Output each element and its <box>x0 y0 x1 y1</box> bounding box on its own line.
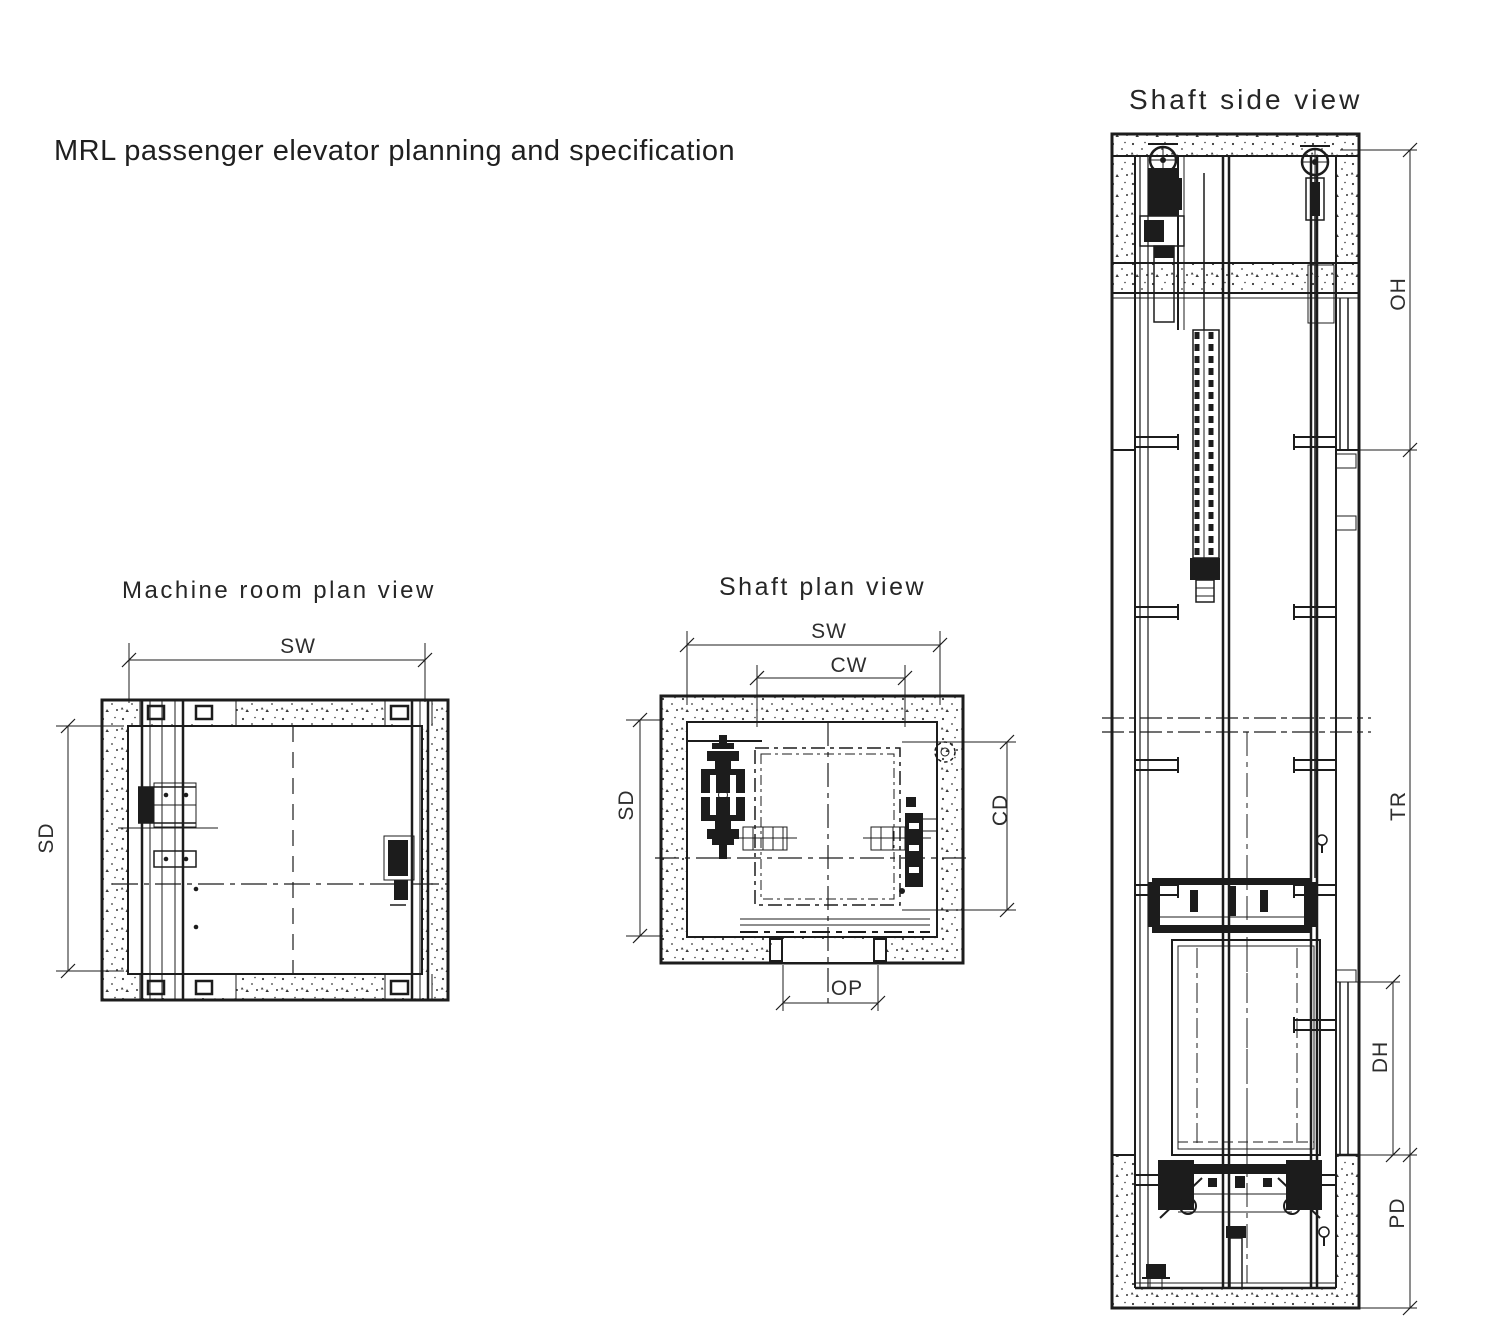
shaft-plan-door-sill <box>740 919 930 932</box>
shaft-side-car <box>1148 878 1320 1155</box>
shaft-plan-dimension-sd <box>626 713 663 943</box>
shaft-side-buffers <box>1142 1226 1329 1288</box>
machine-room-dimension-sw <box>122 643 432 703</box>
machine-room-governor <box>384 836 414 905</box>
machine-room-machine <box>118 783 218 929</box>
machine-room-guide-rails <box>142 700 428 1000</box>
shaft-plan-dimension-sw <box>680 631 947 705</box>
shaft-plan-machine <box>687 735 762 859</box>
shaft-side-guide-rails <box>1140 156 1317 1288</box>
shaft-plan-rail-brackets <box>735 827 931 850</box>
shaft-side-counterweight <box>1190 173 1220 602</box>
shaft-side-break-lines <box>1102 718 1371 732</box>
shaft-side-machine <box>1140 156 1184 330</box>
shaft-side-rail-brackets <box>1135 434 1336 1188</box>
shaft-side-walls <box>1112 134 1359 1308</box>
drawing-sheet: MRL passenger elevator planning and spec… <box>0 0 1496 1332</box>
shaft-plan-drawing <box>600 555 1050 1035</box>
shaft-side-safety-gear <box>1158 1160 1322 1218</box>
shaft-side-drawing <box>1090 120 1430 1325</box>
machine-room-plan-drawing <box>20 555 490 1045</box>
shaft-plan-dimension-op <box>776 965 885 1011</box>
page-title: MRL passenger elevator planning and spec… <box>54 135 735 168</box>
shaft-side-view-title: Shaft side view <box>1129 84 1362 116</box>
